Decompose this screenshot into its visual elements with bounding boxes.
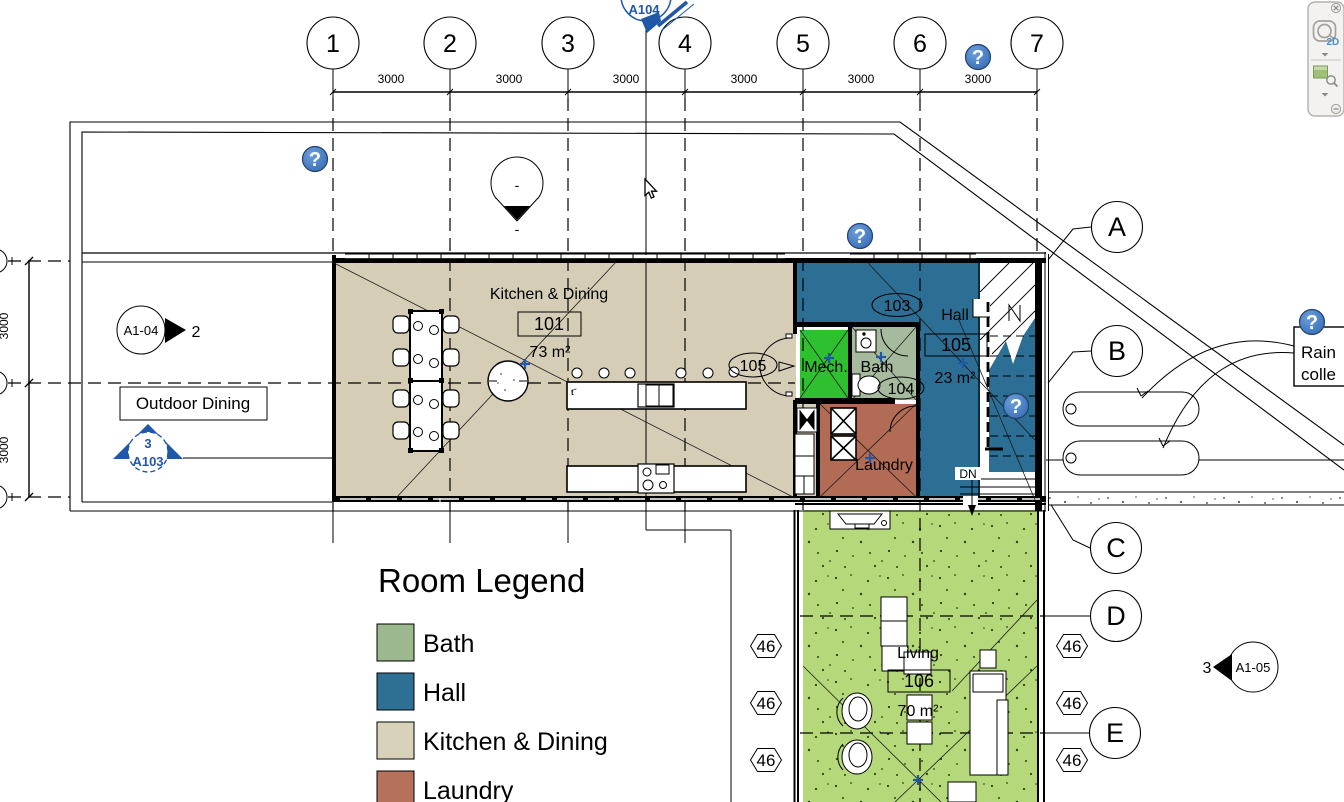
svg-text:Outdoor Dining: Outdoor Dining <box>136 394 250 413</box>
svg-text:4: 4 <box>678 30 692 58</box>
svg-text:?: ? <box>972 47 984 69</box>
svg-text:A: A <box>1108 212 1126 242</box>
svg-text:3000: 3000 <box>731 72 758 86</box>
svg-text:23 m²: 23 m² <box>935 370 977 387</box>
svg-text:A1-04: A1-04 <box>124 323 159 338</box>
svg-text:46: 46 <box>1063 637 1082 656</box>
svg-text:3000: 3000 <box>848 72 875 86</box>
svg-text:3000: 3000 <box>0 436 11 463</box>
svg-text:Room Legend: Room Legend <box>378 562 585 599</box>
svg-text:-: - <box>515 177 520 193</box>
svg-text:46: 46 <box>1063 751 1082 770</box>
svg-text:103: 103 <box>884 298 911 315</box>
svg-text:Kitchen & Dining: Kitchen & Dining <box>490 286 608 303</box>
svg-text:Mech.: Mech. <box>804 359 848 376</box>
svg-text:105: 105 <box>941 335 971 355</box>
svg-text:-: - <box>515 221 520 237</box>
svg-text:106: 106 <box>904 671 934 691</box>
svg-text:B: B <box>1108 336 1126 366</box>
svg-text:?: ? <box>1010 396 1022 418</box>
svg-text:Bath: Bath <box>861 359 894 376</box>
svg-text:46: 46 <box>757 751 776 770</box>
svg-text:1: 1 <box>326 30 340 58</box>
svg-text:A1-05: A1-05 <box>1236 660 1271 675</box>
svg-text:105: 105 <box>740 358 767 375</box>
svg-text:6: 6 <box>913 30 927 58</box>
svg-text:101: 101 <box>534 314 564 334</box>
svg-text:?: ? <box>854 226 866 248</box>
svg-text:3: 3 <box>561 30 575 58</box>
svg-text:46: 46 <box>757 637 776 656</box>
svg-text:Living: Living <box>897 645 939 662</box>
svg-text:E: E <box>1106 718 1124 748</box>
svg-text:Hall: Hall <box>941 307 969 324</box>
svg-text:2: 2 <box>192 324 201 341</box>
svg-text:3000: 3000 <box>613 72 640 86</box>
svg-text:2D: 2D <box>1327 37 1340 48</box>
svg-text:73 m²: 73 m² <box>530 344 572 361</box>
svg-text:5: 5 <box>796 30 810 58</box>
svg-text:DN: DN <box>959 467 976 481</box>
svg-text:Rain: Rain <box>1301 343 1336 362</box>
svg-text:3: 3 <box>144 436 151 451</box>
svg-text:Bath: Bath <box>423 630 474 658</box>
svg-text:C: C <box>1106 533 1126 563</box>
svg-text:3000: 3000 <box>965 72 992 86</box>
svg-text:104: 104 <box>888 381 915 398</box>
svg-text:7: 7 <box>1030 30 1044 58</box>
svg-text:3000: 3000 <box>496 72 523 86</box>
svg-text:70 m²: 70 m² <box>898 703 940 720</box>
svg-text:3000: 3000 <box>0 312 11 339</box>
svg-text:Laundry: Laundry <box>423 777 514 802</box>
svg-text:46: 46 <box>757 694 776 713</box>
svg-text:2: 2 <box>443 30 457 58</box>
svg-text:3: 3 <box>1203 660 1212 677</box>
svg-text:D: D <box>1106 601 1126 631</box>
svg-text:Laundry: Laundry <box>855 457 913 474</box>
svg-text:Kitchen & Dining: Kitchen & Dining <box>423 728 608 756</box>
svg-text:46: 46 <box>1063 694 1082 713</box>
svg-text:Hall: Hall <box>423 679 466 707</box>
svg-text:3000: 3000 <box>378 72 405 86</box>
svg-text:?: ? <box>309 149 321 171</box>
svg-text:colle: colle <box>1301 365 1336 384</box>
svg-text:A103: A103 <box>132 454 163 469</box>
svg-text:?: ? <box>1306 312 1318 334</box>
